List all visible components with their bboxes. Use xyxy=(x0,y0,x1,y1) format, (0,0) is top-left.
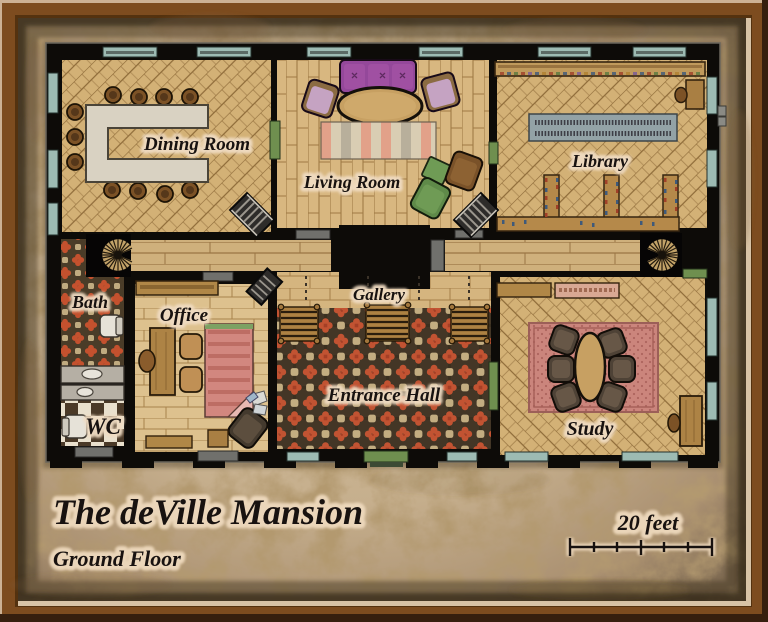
svg-text:WC: WC xyxy=(85,414,121,439)
svg-text:Ground Floor: Ground Floor xyxy=(53,546,181,571)
svg-text:Library: Library xyxy=(571,151,629,171)
svg-text:Entrance Hall: Entrance Hall xyxy=(327,385,441,406)
svg-text:Office: Office xyxy=(160,305,209,326)
svg-text:The deVille Mansion: The deVille Mansion xyxy=(53,492,363,532)
svg-text:Dining Room: Dining Room xyxy=(143,134,250,155)
svg-text:Bath: Bath xyxy=(71,292,108,312)
svg-text:20 feet: 20 feet xyxy=(617,510,679,535)
svg-text:Living Room: Living Room xyxy=(303,172,401,192)
svg-text:Study: Study xyxy=(567,418,614,440)
svg-text:Gallery: Gallery xyxy=(353,285,405,304)
